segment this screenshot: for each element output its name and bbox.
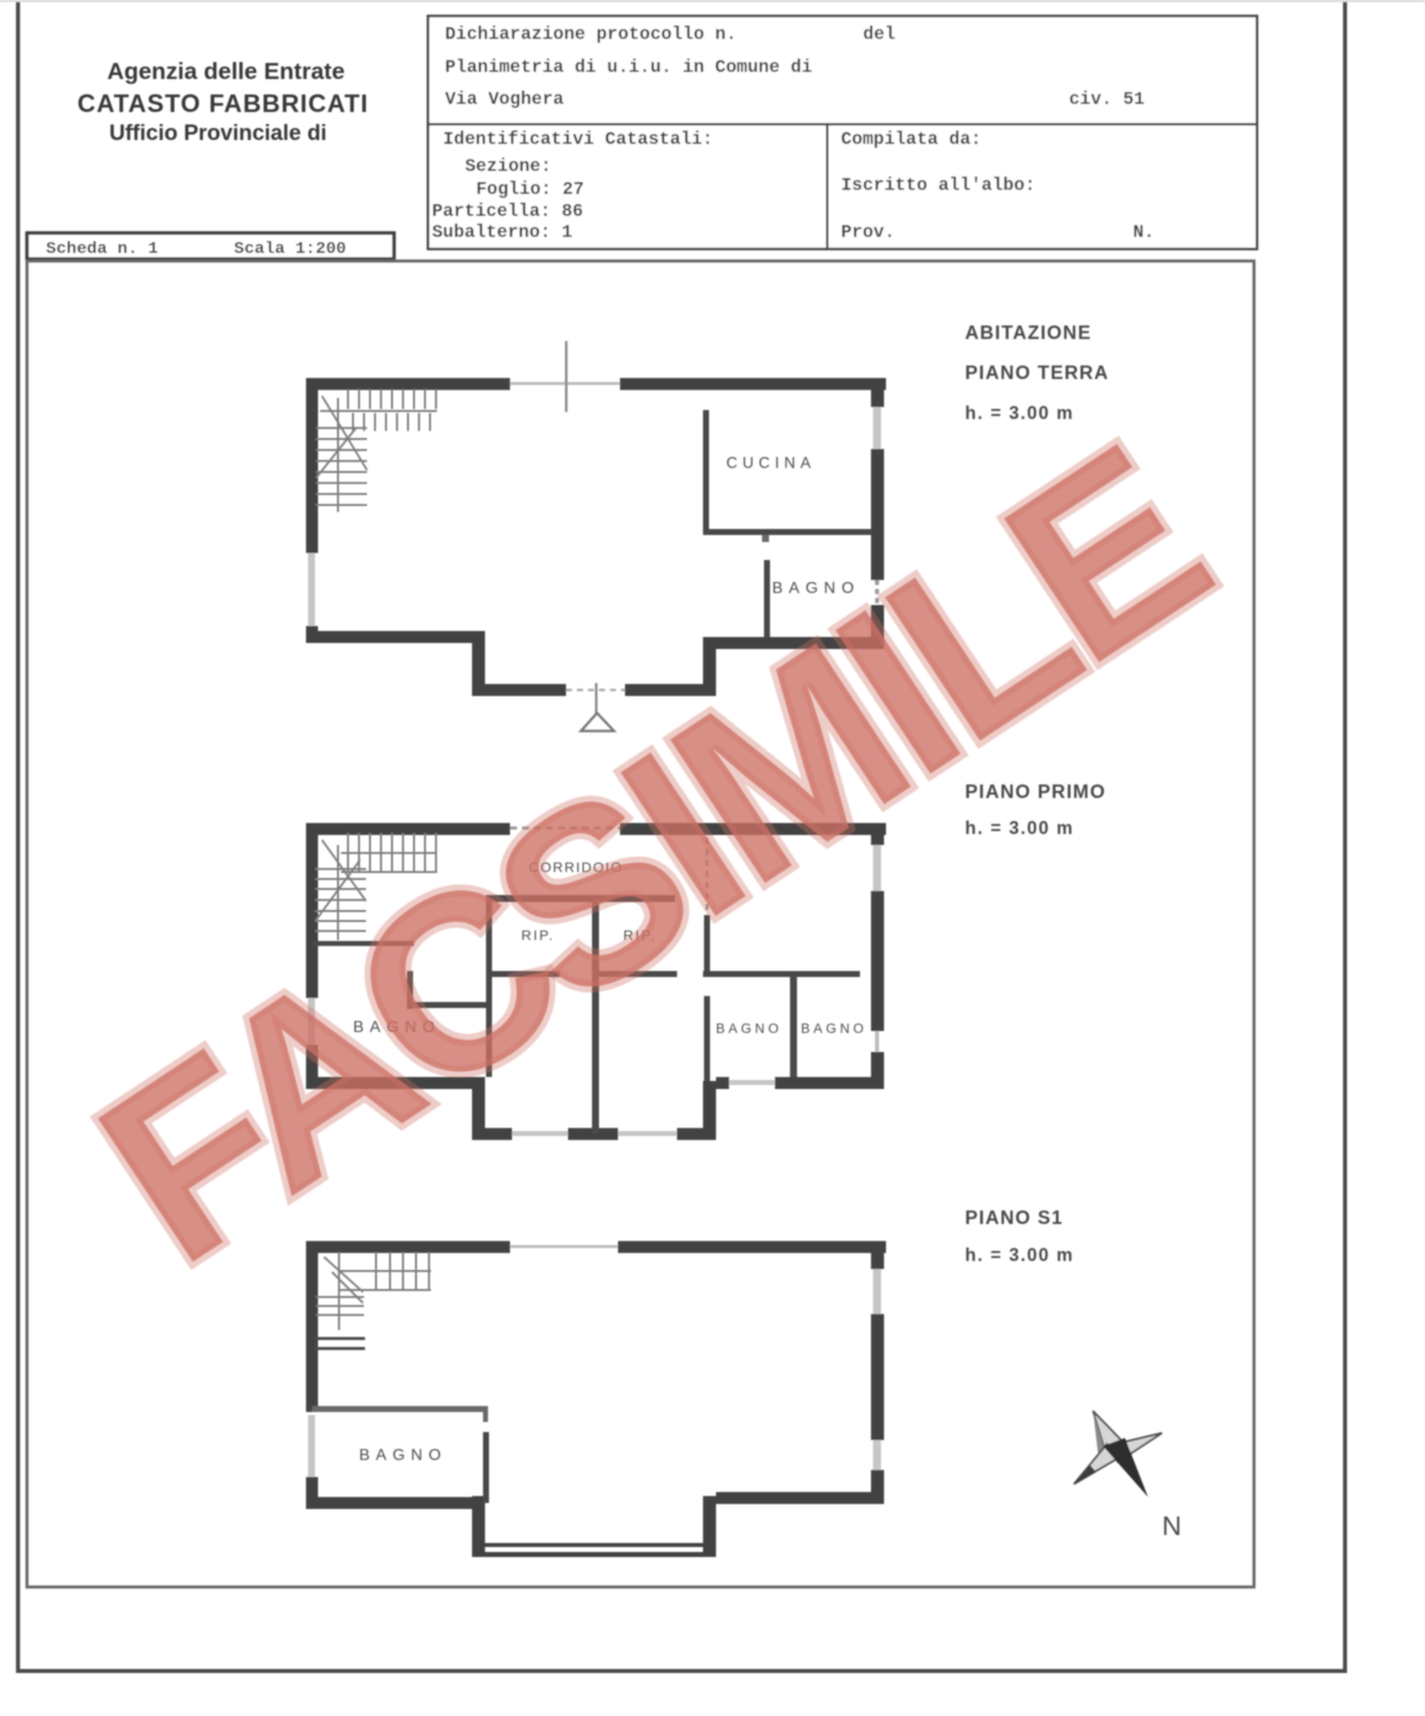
svg-text:Scala 1:200: Scala 1:200	[234, 240, 346, 259]
svg-text:Subalterno: 1: Subalterno: 1	[432, 223, 573, 243]
svg-text:Sezione:: Sezione:	[465, 157, 551, 177]
svg-text:Foglio: 27: Foglio: 27	[476, 180, 584, 200]
svg-text:Identificativi Catastali:: Identificativi Catastali:	[443, 130, 713, 150]
svg-text:Dichiarazione protocollo n.: Dichiarazione protocollo n.	[445, 25, 737, 45]
svg-text:h. = 3.00 m: h. = 3.00 m	[965, 1245, 1074, 1265]
svg-text:Agenzia delle Entrate: Agenzia delle Entrate	[107, 58, 345, 84]
svg-text:BAGNO: BAGNO	[359, 1447, 447, 1464]
svg-text:Ufficio Provinciale di: Ufficio Provinciale di	[109, 120, 327, 145]
svg-text:BAGNO: BAGNO	[716, 1021, 782, 1036]
svg-text:CUCINA: CUCINA	[726, 455, 815, 472]
svg-text:Particella: 86: Particella: 86	[432, 202, 583, 222]
svg-text:Compilata da:: Compilata da:	[841, 130, 981, 150]
svg-text:N.: N.	[1133, 223, 1155, 243]
svg-text:CATASTO FABBRICATI: CATASTO FABBRICATI	[77, 90, 368, 118]
svg-text:Prov.: Prov.	[841, 223, 895, 243]
svg-text:h. = 3.00 m: h. = 3.00 m	[965, 818, 1074, 838]
svg-text:civ. 51: civ. 51	[1069, 90, 1145, 110]
svg-text:Via Voghera: Via Voghera	[445, 90, 564, 110]
svg-text:Scheda n. 1: Scheda n. 1	[46, 240, 158, 259]
svg-text:Planimetria di u.i.u. in Comun: Planimetria di u.i.u. in Comune di	[445, 58, 812, 78]
svg-text:Iscritto all'albo:: Iscritto all'albo:	[841, 176, 1035, 196]
svg-text:ABITAZIONE: ABITAZIONE	[965, 323, 1092, 344]
svg-text:N: N	[1162, 1511, 1182, 1541]
svg-text:del: del	[863, 25, 896, 45]
svg-text:PIANO S1: PIANO S1	[965, 1208, 1063, 1229]
svg-text:BAGNO: BAGNO	[801, 1021, 867, 1036]
svg-text:PIANO TERRA: PIANO TERRA	[965, 363, 1109, 384]
